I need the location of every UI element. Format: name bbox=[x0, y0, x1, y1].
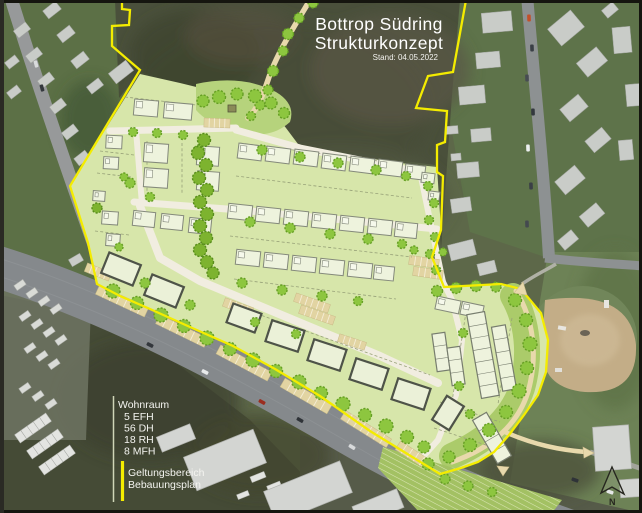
existing-building-roof bbox=[470, 128, 491, 143]
building-entrance-detail bbox=[397, 224, 403, 231]
existing-building-roof bbox=[456, 162, 479, 179]
tree-symbol bbox=[194, 244, 207, 257]
existing-building-roof bbox=[481, 11, 513, 34]
existing-building-roof bbox=[618, 139, 634, 160]
tree-symbol bbox=[192, 147, 205, 160]
building-dh bbox=[132, 210, 155, 227]
existing-building-roof bbox=[446, 125, 459, 134]
building-dh bbox=[347, 261, 372, 278]
tree-symbol bbox=[197, 95, 209, 107]
building-footprint bbox=[456, 162, 479, 179]
existing-building-roof bbox=[612, 26, 632, 53]
tree-symbol bbox=[424, 182, 433, 191]
tree-symbol bbox=[520, 314, 533, 327]
building-entrance-detail bbox=[430, 193, 433, 197]
building-entrance-detail bbox=[350, 263, 357, 270]
building-dh bbox=[373, 265, 394, 281]
legend-area-line-2: Bebauungsplan bbox=[128, 479, 201, 491]
tree-symbol bbox=[265, 97, 277, 109]
tree-symbol bbox=[488, 488, 497, 497]
car bbox=[525, 74, 529, 81]
car bbox=[526, 144, 530, 151]
building-entrance-detail bbox=[314, 214, 321, 221]
tree-symbol bbox=[153, 129, 162, 138]
tree-symbol bbox=[249, 90, 262, 103]
building-entrance-detail bbox=[258, 208, 265, 215]
tree-symbol bbox=[278, 46, 288, 56]
building-dh bbox=[263, 252, 288, 269]
building-entrance-detail bbox=[370, 220, 377, 227]
existing-building-roof bbox=[450, 197, 472, 214]
tree-symbol bbox=[279, 108, 290, 119]
tree-symbol bbox=[115, 243, 123, 251]
tree-symbol bbox=[194, 196, 207, 209]
building-entrance-detail bbox=[322, 260, 329, 267]
tree-symbol bbox=[213, 91, 226, 104]
tree-symbol bbox=[207, 267, 219, 279]
tree-symbol bbox=[398, 240, 407, 249]
building-entrance-detail bbox=[95, 193, 98, 197]
building-footprint bbox=[450, 197, 472, 214]
building-footprint bbox=[619, 478, 642, 498]
building-footprint bbox=[618, 139, 634, 160]
parking-strip-bed bbox=[204, 118, 230, 128]
tree-symbol bbox=[120, 173, 128, 181]
building-entrance-detail bbox=[438, 299, 445, 305]
car bbox=[529, 182, 533, 189]
existing-building-roof bbox=[451, 153, 462, 161]
tree-symbol bbox=[418, 441, 430, 453]
tree-symbol bbox=[512, 384, 526, 398]
tree-symbol bbox=[333, 158, 343, 168]
tree-symbol bbox=[146, 193, 155, 202]
tree-symbol bbox=[402, 172, 411, 181]
building-efh bbox=[93, 191, 106, 202]
building-footprint bbox=[481, 11, 513, 34]
tree-symbol bbox=[245, 217, 255, 227]
tree-symbol bbox=[198, 134, 211, 147]
tree-symbol bbox=[500, 406, 513, 419]
tree-symbol bbox=[509, 294, 522, 307]
tree-symbol bbox=[193, 172, 206, 185]
site-plan-map: N Bottrop Südring Strukturkonzept Stand:… bbox=[0, 0, 642, 513]
building-dh bbox=[163, 102, 192, 120]
title-line-1: Bottrop Südring bbox=[315, 14, 443, 34]
tree-symbol bbox=[466, 410, 475, 419]
tree-symbol bbox=[179, 131, 188, 140]
tree-symbol bbox=[285, 223, 295, 233]
existing-building-roof bbox=[593, 425, 632, 471]
building-dh bbox=[311, 212, 336, 229]
parking-strip bbox=[204, 118, 230, 128]
tree-symbol bbox=[440, 474, 450, 484]
tree-symbol bbox=[237, 278, 247, 288]
building-dh bbox=[143, 168, 168, 189]
title-line-2: Strukturkonzept bbox=[315, 33, 444, 53]
building-entrance-detail bbox=[324, 155, 331, 162]
tree-symbol bbox=[185, 300, 195, 310]
tree-symbol bbox=[247, 112, 256, 121]
building-entrance-detail bbox=[240, 145, 247, 152]
building-entrance-detail bbox=[376, 267, 382, 273]
building-dh bbox=[377, 159, 403, 177]
building-entrance-detail bbox=[286, 211, 293, 218]
legend-item-dh: 56 DH bbox=[124, 423, 154, 435]
tree-symbol bbox=[129, 128, 138, 137]
building-dh bbox=[265, 146, 291, 164]
tree-symbol bbox=[317, 291, 327, 301]
tree-symbol bbox=[251, 318, 260, 327]
building-entrance-detail bbox=[238, 251, 245, 258]
building-dh bbox=[143, 143, 168, 164]
building-entrance-detail bbox=[463, 304, 470, 310]
building-entrance-detail bbox=[380, 161, 387, 168]
tree-symbol bbox=[140, 278, 150, 288]
tree-symbol bbox=[292, 330, 301, 339]
building-dh bbox=[291, 255, 316, 272]
building-entrance-detail bbox=[163, 216, 169, 223]
building-footprint bbox=[593, 425, 632, 471]
tree-symbol bbox=[257, 145, 267, 155]
car bbox=[527, 14, 531, 21]
building-entrance-detail bbox=[268, 148, 275, 155]
tree-symbol bbox=[523, 337, 537, 351]
existing-building-roof bbox=[458, 85, 485, 105]
tree-symbol bbox=[92, 203, 102, 213]
tree-symbol bbox=[268, 66, 279, 77]
building-dh bbox=[160, 213, 183, 230]
title-date: Stand: 04.05.2022 bbox=[373, 53, 439, 62]
tree-symbol bbox=[410, 246, 418, 254]
building-entrance-detail bbox=[294, 257, 301, 264]
tree-symbol bbox=[363, 234, 373, 244]
legend-area-line-1: Geltungsbereich bbox=[128, 467, 205, 479]
tree-symbol bbox=[464, 439, 477, 452]
building-dh bbox=[339, 215, 364, 232]
tree-symbol bbox=[201, 208, 214, 221]
building-footprint bbox=[446, 125, 459, 134]
building-entrance-detail bbox=[166, 104, 174, 111]
building-dh bbox=[319, 258, 344, 275]
building-entrance-detail bbox=[108, 137, 112, 142]
legend-item-mfh: 8 MFH bbox=[124, 446, 156, 458]
tree-symbol bbox=[401, 431, 414, 444]
tree-symbol bbox=[432, 286, 443, 297]
building-dh bbox=[349, 156, 375, 174]
building-entrance-detail bbox=[146, 145, 153, 153]
tree-symbol bbox=[379, 419, 393, 433]
tree-symbol bbox=[430, 199, 439, 208]
legend-item-rh: 18 RH bbox=[124, 434, 154, 446]
tree-symbol bbox=[443, 451, 455, 463]
existing-building-roof bbox=[619, 478, 642, 498]
tree-symbol bbox=[295, 152, 305, 162]
tree-symbol bbox=[521, 362, 534, 375]
building-footprint bbox=[470, 128, 491, 143]
playground-equipment-icon bbox=[228, 105, 236, 112]
legend-header: Wohnraum bbox=[118, 399, 169, 411]
building-entrance-detail bbox=[105, 159, 109, 164]
tree-symbol bbox=[263, 85, 273, 95]
building-dh bbox=[133, 99, 158, 117]
building-entrance-detail bbox=[230, 205, 237, 212]
building-entrance-detail bbox=[108, 236, 112, 241]
building-footprint bbox=[612, 26, 632, 53]
tree-symbol bbox=[294, 13, 304, 23]
building-entrance-detail bbox=[423, 174, 427, 178]
tree-symbol bbox=[439, 248, 447, 256]
building-entrance-detail bbox=[136, 101, 143, 108]
building-entrance-detail bbox=[146, 170, 153, 178]
building-dh bbox=[367, 218, 392, 235]
building-footprint bbox=[475, 51, 500, 69]
building-footprint bbox=[451, 153, 462, 161]
building-dh bbox=[255, 206, 280, 223]
tree-symbol bbox=[463, 481, 473, 491]
building-entrance-detail bbox=[266, 254, 273, 261]
tree-symbol bbox=[354, 297, 363, 306]
tree-symbol bbox=[283, 29, 294, 40]
north-label: N bbox=[609, 497, 616, 507]
legend-item-efh: 5 EFH bbox=[124, 411, 154, 423]
tree-symbol bbox=[459, 329, 468, 338]
tree-symbol bbox=[277, 285, 287, 295]
building-efh bbox=[102, 211, 119, 225]
tree-symbol bbox=[371, 165, 381, 175]
car bbox=[525, 220, 529, 227]
tree-symbol bbox=[483, 424, 496, 437]
building-entrance-detail bbox=[135, 213, 141, 220]
building-dh bbox=[394, 221, 417, 238]
car bbox=[531, 108, 535, 115]
building-footprint bbox=[93, 191, 106, 202]
tree-symbol bbox=[425, 216, 434, 225]
scan-edge bbox=[0, 0, 4, 513]
tree-symbol bbox=[359, 409, 372, 422]
building-entrance-detail bbox=[104, 213, 109, 218]
building-efh bbox=[106, 135, 123, 149]
building-efh bbox=[103, 157, 119, 170]
tree-symbol bbox=[325, 229, 335, 239]
tree-symbol bbox=[201, 184, 214, 197]
building-entrance-detail bbox=[352, 158, 359, 165]
tree-symbol bbox=[194, 220, 207, 233]
map-canvas: N Bottrop Südring Strukturkonzept Stand:… bbox=[0, 0, 642, 513]
tree-symbol bbox=[231, 88, 243, 100]
building-entrance-detail bbox=[342, 217, 349, 224]
tree-symbol bbox=[451, 283, 462, 294]
existing-building-roof bbox=[475, 51, 500, 69]
car bbox=[530, 44, 534, 51]
tree-symbol bbox=[455, 382, 464, 391]
tree-symbol bbox=[200, 159, 213, 172]
building-dh bbox=[235, 249, 260, 266]
tree-symbol bbox=[200, 232, 213, 245]
building-footprint bbox=[458, 85, 485, 105]
